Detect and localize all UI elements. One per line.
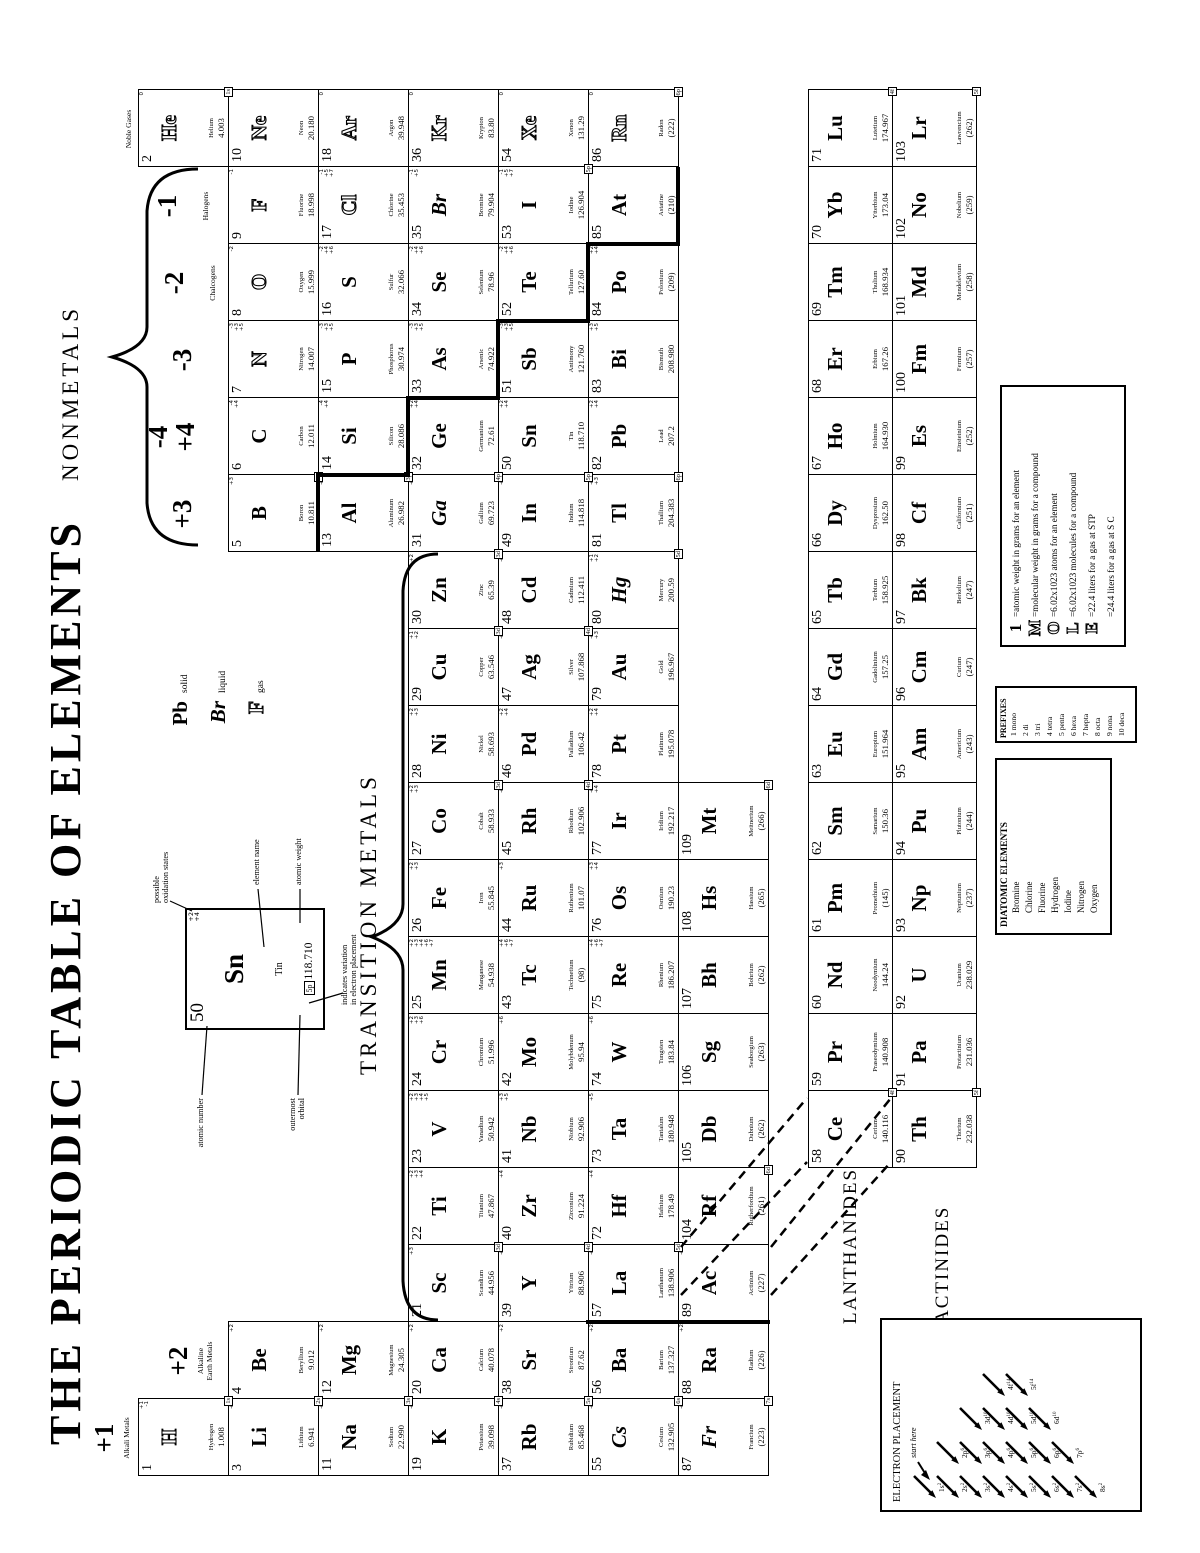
element-symbol: V	[428, 1091, 450, 1167]
element-name: Vanadium	[478, 1091, 485, 1167]
element-cell-K: 19+1KPotassium39.0984s	[408, 1398, 499, 1476]
atomic-number: 86	[591, 148, 605, 162]
element-symbol: Db	[698, 1091, 720, 1167]
atomic-number: 20	[411, 1380, 425, 1394]
atomic-number: 12	[321, 1380, 335, 1394]
atomic-number: 33	[411, 379, 425, 393]
ox-label-group14-top: -4	[146, 377, 171, 497]
atomic-number: 50	[501, 456, 515, 470]
element-name: Thulium	[872, 244, 879, 320]
atomic-weight: (266)	[757, 783, 766, 859]
atomic-weight: 192.217	[667, 783, 676, 859]
atomic-number: 40	[501, 1226, 515, 1240]
atomic-weight: 164.930	[881, 398, 890, 474]
atomic-number: 74	[591, 1072, 605, 1086]
element-symbol: Te	[518, 244, 540, 320]
element-name: Selenium	[478, 244, 485, 320]
ox-label-group17: -1	[155, 146, 180, 266]
oxidation-states: +1+2	[590, 554, 600, 562]
atomic-number: 103	[895, 141, 909, 162]
element-cell-Ca: 20+2CaCalcium40.078	[408, 1321, 499, 1399]
element-cell-Si: 14-4+4SiSilicon28.086	[318, 397, 409, 475]
element-name: Chromium	[478, 1014, 485, 1090]
element-symbol: Pb	[608, 398, 630, 474]
atomic-weight: 47.867	[487, 1168, 496, 1244]
orbital-tag: 4f	[888, 87, 897, 96]
atomic-weight: 101.07	[577, 860, 586, 936]
element-symbol: P	[338, 321, 360, 397]
element-cell-Er: 68ErErbium167.26	[808, 320, 893, 398]
atomic-weight: 40.078	[487, 1322, 496, 1398]
state-legend-gas: Fgas	[244, 591, 269, 741]
nonmetals-label: NONMETALS	[58, 273, 84, 513]
element-symbol: Fm	[908, 321, 930, 397]
element-cell-Pu: 94PuPlutonium(244)	[892, 782, 977, 860]
element-cell-Hg: 80+1+2HgMercury200.595d	[588, 551, 679, 629]
element-name: Hafnium	[658, 1168, 665, 1244]
atomic-weight: 186.207	[667, 937, 676, 1013]
element-name: Rutherfordium	[748, 1168, 755, 1244]
pointer-atomic-number	[202, 1026, 207, 1095]
element-name: Fluorine	[298, 167, 305, 243]
atomic-weight: 92.906	[577, 1091, 586, 1167]
prefix-item: 5 penta	[1056, 691, 1068, 738]
element-symbol: Br	[428, 167, 450, 243]
element-cell-Br: 35-1+5BrBromine79.904	[408, 166, 499, 244]
element-name: Fermium	[956, 321, 963, 397]
atomic-number: 32	[411, 456, 425, 470]
element-name: Rhenium	[658, 937, 665, 1013]
atomic-number: 87	[681, 1457, 695, 1471]
element-symbol: Li	[248, 1399, 270, 1475]
orbital-tag: 3d	[494, 1242, 503, 1253]
atomic-number: 5	[231, 540, 245, 547]
atomic-weight: (262)	[757, 937, 766, 1013]
element-cell-Cl: 17-1+5+7ClChlorine35.453	[318, 166, 409, 244]
atomic-weight: (265)	[757, 860, 766, 936]
element-symbol: Am	[908, 706, 930, 782]
sample-atomic-number: 50	[191, 1003, 205, 1022]
atomic-number: 53	[501, 225, 515, 239]
element-cell-Hs: 108HsHassium(265)	[678, 859, 769, 937]
element-symbol: Sc	[428, 1245, 450, 1321]
oxidation-states: -2+4+6	[410, 246, 425, 254]
atomic-number: 43	[501, 995, 515, 1009]
element-cell-Sn: 50+2+4SnTin118.710	[498, 397, 589, 475]
mole-letter: O	[1044, 617, 1064, 639]
element-name: Manganese	[478, 937, 485, 1013]
atomic-weight: 114.818	[577, 475, 586, 551]
element-cell-Po: 84+2+4PoPolonium(209)	[588, 243, 679, 321]
element-symbol: Cf	[908, 475, 930, 551]
atomic-number: 9	[231, 232, 245, 239]
oxidation-states: +2	[680, 1324, 685, 1332]
oxidation-states: 0	[590, 92, 595, 96]
element-symbol: Pd	[518, 706, 540, 782]
element-symbol: S	[338, 244, 360, 320]
oxidation-states: +2	[230, 1324, 235, 1332]
page: THE PERIODIC TABLE OF ELEMENTS +1 Alkali…	[0, 0, 1200, 1553]
lanthanides-label: LANTHANIDES	[840, 1168, 862, 1324]
atomic-number: 2	[141, 155, 155, 162]
element-symbol: Pm	[824, 860, 846, 936]
family-label-halogens: Halogens	[201, 146, 210, 266]
prefixes-title: PREFIXES	[999, 691, 1008, 738]
element-cell-Au: 79+1+3AuGold196.967	[588, 628, 679, 706]
atomic-weight: (263)	[757, 1014, 766, 1090]
element-name: Californium	[956, 475, 963, 551]
element-cell-Pt: 78+2+4PtPlatinum195.078	[588, 705, 679, 783]
element-symbol: Bh	[698, 937, 720, 1013]
element-cell-Al: 13+3AlAluminum26.9823p	[318, 474, 409, 552]
mole-row: M=molecular weight in grams for a compou…	[1025, 393, 1044, 639]
element-name: Thallium	[658, 475, 665, 551]
element-cell-Nb: 41+3+5NbNiobium92.906	[498, 1090, 589, 1168]
element-name: Radium	[748, 1322, 755, 1398]
element-name: Zinc	[478, 552, 485, 628]
atomic-number: 41	[501, 1149, 515, 1163]
atomic-number: 44	[501, 918, 515, 932]
element-symbol: Ba	[608, 1322, 630, 1398]
element-name: Nobelium	[956, 167, 963, 243]
orbital-label: 5f14	[1029, 1378, 1038, 1390]
atomic-number: 76	[591, 918, 605, 932]
element-symbol: Pu	[908, 783, 930, 859]
atomic-number: 78	[591, 764, 605, 778]
atomic-weight: 106.42	[577, 706, 586, 782]
element-name: Bohrium	[748, 937, 755, 1013]
atomic-weight: 91.224	[577, 1168, 586, 1244]
diatomic-item: Oxygen	[1088, 766, 1101, 927]
sample-orbital-tag: 5p	[304, 981, 315, 995]
atomic-weight: 39.948	[397, 90, 406, 166]
atomic-weight: 174.967	[881, 90, 890, 166]
atomic-weight: 32.066	[397, 244, 406, 320]
atomic-number: 56	[591, 1380, 605, 1394]
element-name: Terbium	[872, 552, 879, 628]
orbital-tag: 6s	[674, 1396, 683, 1406]
atomic-weight: (252)	[965, 398, 974, 474]
atomic-weight: 204.383	[667, 475, 676, 551]
atomic-weight: 88.906	[577, 1245, 586, 1321]
atomic-number: 25	[411, 995, 425, 1009]
orbital-tag: 5f	[972, 87, 981, 96]
oxidation-states: +6	[590, 1016, 595, 1024]
prefix-item: 4 tetra	[1044, 691, 1056, 738]
atomic-number: 94	[895, 841, 909, 855]
atomic-weight: 107.868	[577, 629, 586, 705]
element-symbol: Nb	[518, 1091, 540, 1167]
element-cell-Xe: 540XeXenon131.29	[498, 89, 589, 167]
element-symbol: Bi	[608, 321, 630, 397]
element-cell-Am: 95AmAmericium(243)	[892, 705, 977, 783]
element-symbol: Kr	[428, 90, 450, 166]
sample-oxidation-states: +2+4	[188, 912, 200, 922]
element-name: Praseodymium	[872, 1014, 879, 1090]
element-cell-Ce: 58CeCerium140.1164f	[808, 1090, 893, 1168]
atomic-number: 68	[811, 379, 825, 393]
atomic-weight: 126.904	[577, 167, 586, 243]
element-symbol: Cm	[908, 629, 930, 705]
element-symbol: Mn	[428, 937, 450, 1013]
mole-definition: =22.4 liters for a gas at STP	[1087, 514, 1097, 617]
element-cell-Hf: 72+4HfHafnium178.49	[588, 1167, 679, 1245]
element-name: Calcium	[478, 1322, 485, 1398]
element-name: Ytterbium	[872, 167, 879, 243]
atomic-number: 13	[321, 533, 335, 547]
atomic-number: 49	[501, 533, 515, 547]
atomic-number: 17	[321, 225, 335, 239]
element-symbol: Ne	[248, 90, 270, 166]
atomic-number: 93	[895, 918, 909, 932]
element-name: Americium	[956, 706, 963, 782]
atomic-number: 62	[811, 841, 825, 855]
atomic-number: 88	[681, 1380, 695, 1394]
atomic-number: 80	[591, 610, 605, 624]
oxidation-states: -2+4+6	[320, 246, 335, 254]
element-cell-Tb: 65TbTerbium158.925	[808, 551, 893, 629]
element-name: Gallium	[478, 475, 485, 551]
element-symbol: Ni	[428, 706, 450, 782]
oxidation-states: +2	[320, 1324, 325, 1332]
element-symbol: Mt	[698, 783, 720, 859]
element-name: Ruthenium	[568, 860, 575, 936]
element-symbol: Hs	[698, 860, 720, 936]
element-symbol: Fe	[428, 860, 450, 936]
element-symbol: Ti	[428, 1168, 450, 1244]
atomic-number: 97	[895, 610, 909, 624]
atomic-number: 70	[811, 225, 825, 239]
atomic-weight: (145)	[881, 860, 890, 936]
solid-symbol: Pb	[168, 701, 193, 741]
atomic-number: 109	[681, 834, 695, 855]
element-symbol: Si	[338, 398, 360, 474]
mole-definition-box: 1=atomic weight in grams for an elementM…	[1000, 385, 1126, 647]
oxidation-states: +6	[500, 1016, 505, 1024]
atomic-weight: 190.23	[667, 860, 676, 936]
atomic-weight: 127.60	[577, 244, 586, 320]
element-cell-Cd: 48+2CdCadmium112.411	[498, 551, 589, 629]
atomic-number: 27	[411, 841, 425, 855]
liquid-symbol: Br	[206, 701, 231, 741]
element-name: Lead	[658, 398, 665, 474]
element-name: Indium	[568, 475, 575, 551]
element-symbol: Ru	[518, 860, 540, 936]
element-cell-Ba: 56+2BaBarium137.327	[588, 1321, 679, 1399]
atomic-number: 46	[501, 764, 515, 778]
atomic-weight: (258)	[965, 244, 974, 320]
element-name: Hassium	[748, 860, 755, 936]
atomic-weight: 28.086	[397, 398, 406, 474]
element-name: Neodymium	[872, 937, 879, 1013]
element-name: Mendelevium	[956, 244, 963, 320]
element-name: Copper	[478, 629, 485, 705]
actinides-label: ACTINIDES	[932, 1206, 954, 1324]
mole-letter: E	[1082, 617, 1102, 639]
element-cell-Sg: 106SgSeaborgium(263)	[678, 1013, 769, 1091]
orbital-label: 7p6	[1075, 1448, 1084, 1459]
element-name: Platinum	[658, 706, 665, 782]
element-symbol: Os	[608, 860, 630, 936]
orbital-tag: 4d	[584, 780, 593, 791]
element-cell-Eu: 63EuEuropium151.964	[808, 705, 893, 783]
atomic-weight: 58.933	[487, 783, 496, 859]
mole-row: E=22.4 liters for a gas at STP	[1082, 393, 1101, 639]
element-symbol: Th	[908, 1091, 930, 1167]
atomic-number: 82	[591, 456, 605, 470]
atomic-weight: 22.990	[397, 1399, 406, 1475]
atomic-number: 35	[411, 225, 425, 239]
element-name: Nickel	[478, 706, 485, 782]
atomic-weight: 140.116	[881, 1091, 890, 1167]
element-symbol: Sn	[518, 398, 540, 474]
atomic-weight: 118.710	[577, 398, 586, 474]
oxidation-states: -1	[230, 169, 235, 174]
oxidation-states: +2	[590, 1324, 595, 1332]
atomic-weight: 208.980	[667, 321, 676, 397]
atomic-weight: 87.62	[577, 1322, 586, 1398]
state-legend-solid: Pbsolid	[168, 591, 193, 741]
atomic-weight: (262)	[757, 1091, 766, 1167]
element-cell-Ti: 22+2+3+4TiTitanium47.867	[408, 1167, 499, 1245]
atomic-weight: 83.80	[487, 90, 496, 166]
element-symbol: Rb	[518, 1399, 540, 1475]
element-name: Palladium	[568, 706, 575, 782]
atomic-number: 79	[591, 687, 605, 701]
orbital-tag: 1s	[224, 87, 233, 97]
atomic-weight: (244)	[965, 783, 974, 859]
element-cell-Bi: 83+3+5BiBismuth208.980	[588, 320, 679, 398]
element-cell-At: 85-1AtAstatine(210)	[588, 166, 679, 244]
element-cell-Kr: 360KrKrypton83.80	[408, 89, 499, 167]
element-symbol: As	[428, 321, 450, 397]
actinide-dash-1	[771, 1162, 891, 1295]
mole-row: =24.4 liters for a gas at S C	[1101, 393, 1120, 639]
element-symbol: Gd	[824, 629, 846, 705]
atomic-number: 14	[321, 456, 335, 470]
element-symbol: Tm	[824, 244, 846, 320]
element-cell-In: 49+3InIndium114.8185p	[498, 474, 589, 552]
element-name: Tantalum	[658, 1091, 665, 1167]
atomic-number: 57	[591, 1303, 605, 1317]
atomic-weight: 167.26	[881, 321, 890, 397]
state-legend-liquid: Brliquid	[206, 591, 231, 741]
element-name: Bromine	[478, 167, 485, 243]
atomic-weight: 30.974	[397, 321, 406, 397]
element-cell-Rh: 45+3RhRhodium102.9064d	[498, 782, 589, 860]
element-symbol: Se	[428, 244, 450, 320]
atomic-weight: 9.012	[307, 1322, 316, 1398]
atomic-number: 63	[811, 764, 825, 778]
element-name: Osmium	[658, 860, 665, 936]
element-name: Sodium	[388, 1399, 395, 1475]
element-name: Potassium	[478, 1399, 485, 1475]
element-cell-Lr: 103LrLawrencium(262)5f	[892, 89, 977, 167]
element-name: Phosphorus	[388, 321, 395, 397]
oxidation-states: +2	[410, 1324, 415, 1332]
atomic-number: 64	[811, 687, 825, 701]
oxidation-states: -3+3+5	[230, 323, 245, 331]
sample-weight-row: 5p118.710	[303, 910, 315, 1028]
element-cell-Be: 4+2BeBeryllium9.012	[228, 1321, 319, 1399]
atomic-number: 54	[501, 148, 515, 162]
element-cell-Bk: 97BkBerkelium(247)	[892, 551, 977, 629]
atomic-number: 106	[681, 1065, 695, 1086]
atomic-number: 23	[411, 1149, 425, 1163]
atomic-weight: 20.180	[307, 90, 316, 166]
atomic-weight: 144.24	[881, 937, 890, 1013]
atomic-number: 89	[681, 1303, 695, 1317]
element-symbol: Tb	[824, 552, 846, 628]
oxidation-states: +5	[590, 1093, 595, 1101]
mole-definition: =atomic weight in grams for an element	[1011, 470, 1021, 617]
atomic-weight: 12.011	[307, 398, 316, 474]
mole-row: O=6.02x1023 atoms for an element	[1044, 393, 1063, 639]
element-name: Germanium	[478, 398, 485, 474]
prefixes-box: PREFIXES 1 mono2 di3 tri4 tetra5 penta6 …	[995, 686, 1137, 743]
atomic-weight: 24.305	[397, 1322, 406, 1398]
element-name: Oxygen	[298, 244, 305, 320]
element-cell-Cu: 29+1+2CuCopper63.5463d	[408, 628, 499, 706]
atomic-number: 22	[411, 1226, 425, 1240]
element-symbol: Np	[908, 860, 930, 936]
diatomic-item: Nitrogen	[1075, 766, 1088, 927]
element-symbol: Dy	[824, 475, 846, 551]
element-name: Dysprosium	[872, 475, 879, 551]
orbital-tag: 6d	[764, 780, 773, 791]
oxidation-states: +3+4	[590, 862, 600, 870]
prefix-item: 1 mono	[1008, 691, 1020, 738]
element-cell-W: 74+6WTungsten183.84	[588, 1013, 679, 1091]
atomic-weight: (226)	[757, 1322, 766, 1398]
element-name: Neptunium	[956, 860, 963, 936]
element-symbol: Pt	[608, 706, 630, 782]
atomic-weight: 58.693	[487, 706, 496, 782]
element-name: Astatine	[658, 167, 665, 243]
ox-label-group2: +2	[166, 1301, 191, 1421]
element-symbol: Ag	[518, 629, 540, 705]
element-name: Actinium	[748, 1245, 755, 1321]
element-cell-Rb: 37+1RbRubidium85.4685s	[498, 1398, 589, 1476]
element-cell-No: 102NoNobelium(259)	[892, 166, 977, 244]
diatomic-item: Chlorine	[1023, 766, 1036, 927]
atomic-number: 66	[811, 533, 825, 547]
element-symbol: Pr	[824, 1014, 846, 1090]
oxidation-states: 0	[320, 92, 325, 96]
element-name: Arsenic	[478, 321, 485, 397]
element-symbol: B	[248, 475, 270, 551]
element-name: Francium	[748, 1399, 755, 1475]
prefix-item: 9 nona	[1104, 691, 1116, 738]
atomic-number: 21	[411, 1303, 425, 1317]
element-cell-P: 15-3+3+5PPhosphorus30.974	[318, 320, 409, 398]
oxidation-states: +4+6+7	[590, 939, 605, 947]
element-symbol: Sg	[698, 1014, 720, 1090]
element-cell-Zn: 30+2ZnZinc65.393d	[408, 551, 499, 629]
atomic-number: 107	[681, 988, 695, 1009]
atomic-weight: 231.036	[965, 1014, 974, 1090]
atomic-number: 95	[895, 764, 909, 778]
element-symbol: Ra	[698, 1322, 720, 1398]
diatomic-item: Bromine	[1010, 766, 1023, 927]
orbital-tag: 6d	[764, 1165, 773, 1176]
atomic-number: 26	[411, 918, 425, 932]
element-symbol: Ge	[428, 398, 450, 474]
atomic-weight: (222)	[667, 90, 676, 166]
element-symbol: Md	[908, 244, 930, 320]
element-symbol: Fr	[698, 1399, 720, 1475]
liquid-label: liquid	[218, 671, 228, 693]
